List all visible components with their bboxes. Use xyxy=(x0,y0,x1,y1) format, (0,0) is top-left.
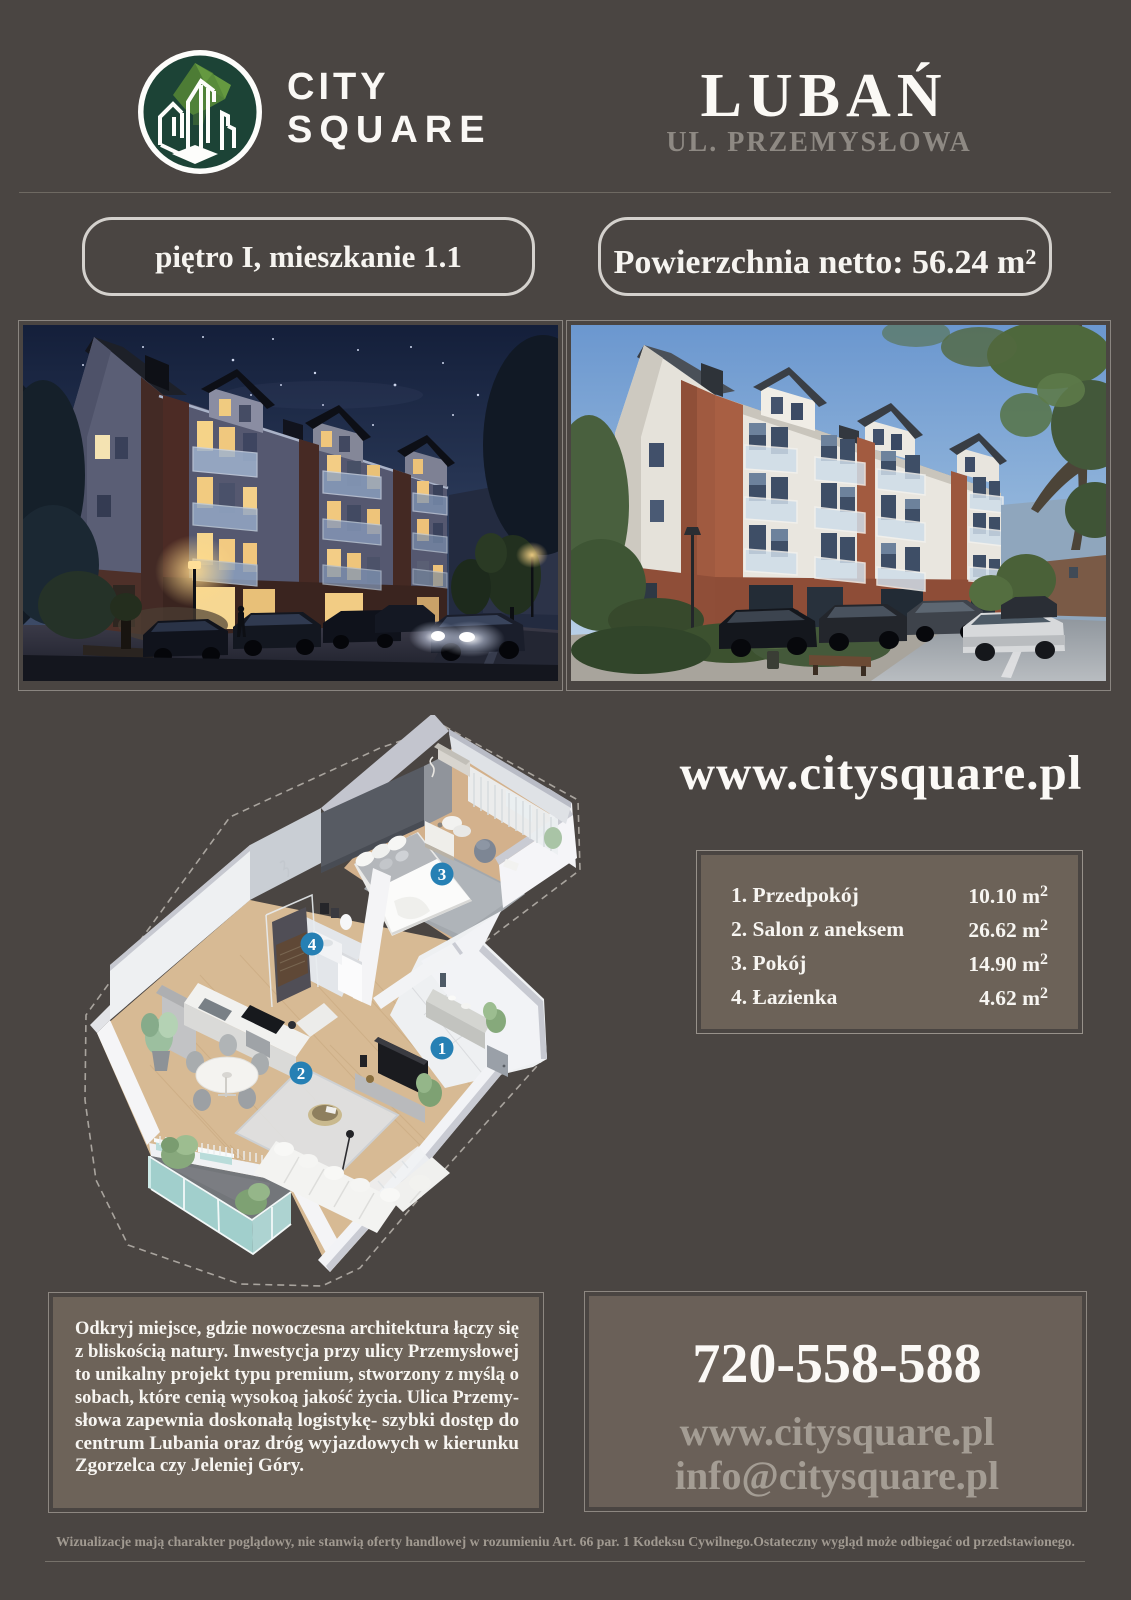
svg-text:3: 3 xyxy=(438,865,447,884)
svg-text:4: 4 xyxy=(308,935,317,954)
svg-text:1: 1 xyxy=(438,1039,447,1058)
svg-text:2: 2 xyxy=(297,1064,306,1083)
